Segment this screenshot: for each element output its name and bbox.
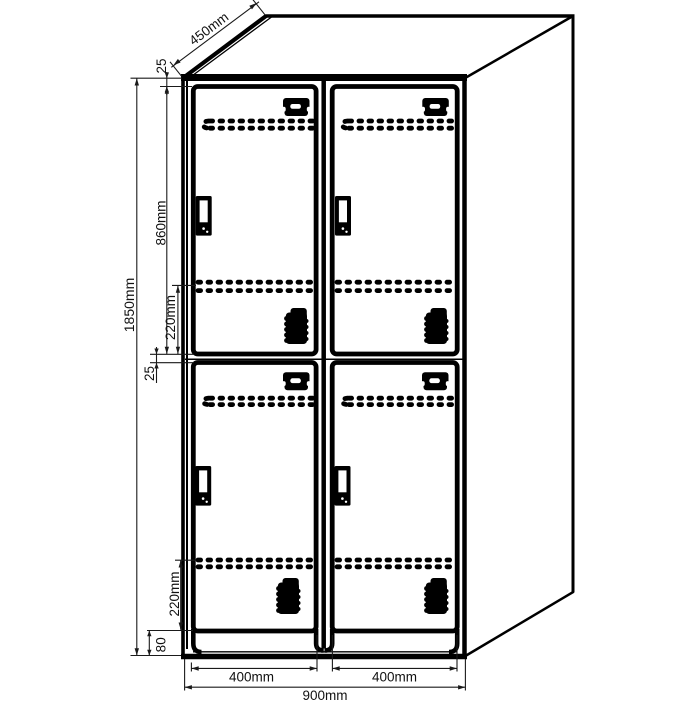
svg-text:1850mm: 1850mm <box>121 278 137 332</box>
svg-text:400mm: 400mm <box>372 670 417 685</box>
svg-text:220mm: 220mm <box>163 295 178 340</box>
svg-text:25: 25 <box>154 58 169 73</box>
svg-text:900mm: 900mm <box>302 688 347 700</box>
svg-text:25: 25 <box>142 366 157 381</box>
svg-text:220mm: 220mm <box>167 571 182 616</box>
svg-text:80: 80 <box>154 637 169 652</box>
svg-text:400mm: 400mm <box>229 670 274 685</box>
svg-text:860mm: 860mm <box>154 200 169 245</box>
